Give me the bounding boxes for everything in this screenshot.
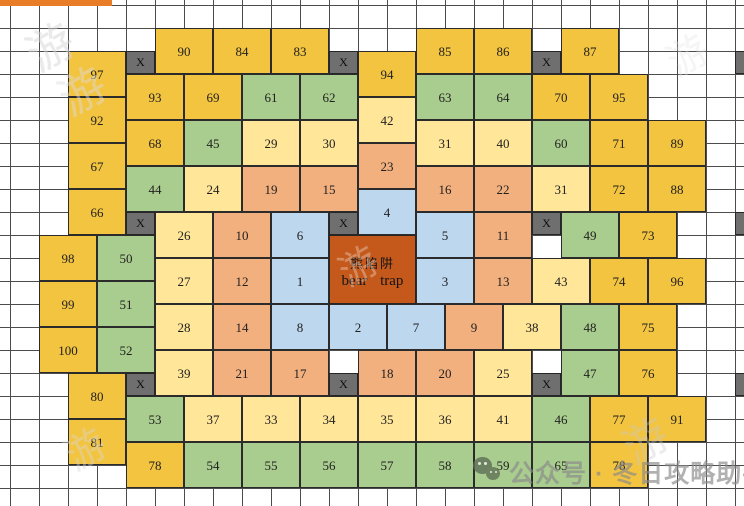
bear-trap-map-canvas: 9084838586879794936961626364709592426845…: [0, 0, 744, 506]
watermark-brand-text: 公众号 · 冬日攻略助手: [509, 454, 744, 490]
watermark-stamp: 游: [13, 5, 86, 85]
wechat-icon: [473, 450, 504, 483]
watermark-stamp: 游: [45, 49, 118, 129]
watermark-stamp: 游: [327, 230, 387, 297]
watermark-stamp: 游: [52, 412, 116, 482]
watermark-brand: 公众号 · 冬日攻略助手: [473, 450, 744, 490]
watermark-layer: 游游游游游游: [0, 0, 744, 506]
watermark-stamp: 游: [654, 18, 718, 88]
